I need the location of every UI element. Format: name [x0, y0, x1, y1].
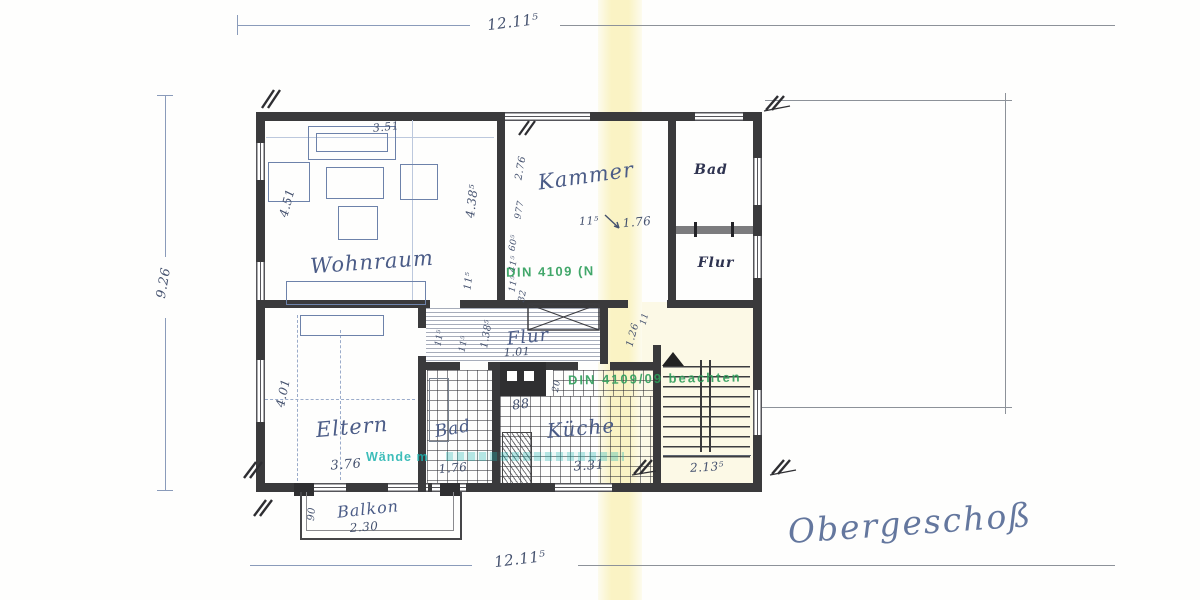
exterior-wall-left: [256, 180, 265, 262]
proj-line-right-top: [765, 100, 1005, 101]
room-label-bad-top: Bad: [694, 162, 728, 178]
exterior-wall-left: [256, 112, 265, 143]
wardrobe-eltern: [300, 315, 384, 336]
dim-chain-60: 60⁵: [508, 234, 521, 252]
dim-chain-276: 2.76: [513, 155, 528, 181]
chimney-flue: [507, 371, 517, 381]
exterior-wall-right: [753, 205, 762, 236]
dim-kammer-wall: 11⁵: [579, 214, 600, 228]
dim-slash-mark: [250, 496, 276, 520]
window-kueche-bottom: [555, 483, 612, 492]
dim-wall-11: 11⁵: [462, 271, 475, 290]
dim-line-left2: [165, 318, 166, 490]
wall-kueche-top: [545, 362, 578, 370]
door-arrow: [602, 212, 624, 234]
stamp-din-lower: DIN 4109/09 beachten: [568, 369, 742, 387]
exterior-wall-left: [256, 302, 265, 360]
sheet-title: Obergeschoß: [787, 495, 1034, 551]
wall-flur-badkueche: [488, 362, 500, 370]
stamp-walls-note: Wände m: [366, 450, 429, 464]
exterior-wall-bottom: [346, 483, 388, 492]
window-bad-top: [695, 112, 743, 121]
floor-plan-sheet: Wohnraum Kammer Bad Flur Flur Eltern Bad…: [0, 0, 1200, 600]
dim-tick: [998, 407, 1012, 408]
wall-bad-flur-partition: [676, 226, 753, 234]
dim-slash-mark: [630, 456, 658, 478]
dim-balkon-width: 2.30: [349, 519, 379, 535]
dim-kammer-door: 1.76: [622, 214, 652, 230]
dim-tick: [157, 95, 173, 96]
door-tick: [694, 222, 697, 237]
room-label-eltern: Eltern: [315, 412, 389, 442]
wall-wohnraum-bottom2: [460, 300, 505, 308]
dim-line-left: [165, 95, 166, 257]
wall-corridor-left: [600, 308, 608, 364]
proj-line-right-bottom: [762, 407, 1005, 408]
dim-line-top-right: [560, 25, 1115, 26]
wall-wohnraum-kammer: [497, 112, 505, 308]
room-label-flur-top: Flur: [698, 255, 735, 271]
dim-slash-mark: [516, 118, 540, 138]
dim-line-top: [237, 25, 470, 26]
exterior-wall-top: [256, 112, 505, 121]
exterior-wall-top: [590, 112, 695, 121]
dim-slash-mark: [762, 92, 792, 114]
wall-kammer-bad: [668, 112, 676, 300]
dim-slash-mark: [768, 456, 798, 478]
dim-eltern-depth: 4.01: [273, 377, 293, 408]
room-label-wohnraum: Wohnraum: [309, 246, 434, 279]
exterior-wall-bottom: [466, 483, 555, 492]
armchair-right: [400, 164, 438, 200]
coffee-table: [326, 167, 384, 199]
dim-sofa-width: 3.51: [372, 119, 400, 135]
exterior-wall-right: [753, 278, 762, 390]
window-bad-right: [753, 158, 762, 205]
exterior-wall-right: [753, 112, 762, 158]
dim-balkon-depth: 90: [306, 507, 318, 522]
window-flur-right: [753, 236, 762, 278]
dim-overall-depth-left: 9.26: [154, 266, 174, 299]
wall-bad-kueche: [492, 370, 500, 483]
stair-direction-arrow: [662, 352, 684, 366]
dim-shaft-88: 88: [511, 396, 530, 413]
dim-overall-width-bottom: 12.11⁵: [493, 547, 547, 571]
dim-wohnraum-right-depth: 4.38⁵: [463, 183, 481, 218]
window-eltern-left: [256, 360, 265, 422]
chimney-flue: [524, 371, 534, 381]
dim-tick: [998, 100, 1012, 101]
dim-slash-mark: [240, 458, 266, 482]
armchair-center: [338, 206, 378, 240]
window-wohnraum-left1: [256, 143, 265, 180]
wall-flurtop-bottom: [667, 300, 762, 308]
dim-eltern-width: 3.76: [330, 456, 362, 473]
dim-overall-width-top: 12.11⁵: [486, 10, 540, 34]
dim-corridor-11: 11: [639, 312, 652, 327]
dim-line-bottom-right: [578, 565, 1115, 566]
stair-dim-bracket: [663, 455, 751, 456]
stamp-walls-note-illegible: [446, 452, 624, 461]
sideboard: [286, 281, 426, 305]
window-wohnraum-left2: [256, 262, 265, 302]
proj-line-right-vert: [1005, 100, 1006, 407]
dim-line-bottom: [250, 565, 472, 566]
dim-corridor-126: 1.26: [625, 322, 642, 348]
dim-door-20: 20: [551, 379, 563, 393]
dim-bad-width: 1.76: [438, 460, 468, 476]
dim-tick: [237, 15, 238, 35]
stamp-din-upper: DIN 4109 (N: [506, 263, 595, 280]
dim-treppe-width: 2.13⁵: [690, 459, 725, 475]
dim-tick: [157, 490, 173, 491]
exterior-wall-bottom: [612, 483, 762, 492]
dim-chain-32: 32: [517, 289, 529, 303]
wall-eltern-flur-lower: [418, 356, 426, 492]
door-tick: [731, 222, 734, 237]
dim-slash-mark: [258, 86, 284, 110]
wall-flur-badkueche: [418, 362, 460, 370]
construction-dashed: [297, 315, 298, 481]
dim-chain-977: 977: [513, 200, 526, 220]
dim-flur-width: 1.01: [503, 345, 530, 359]
window-treppe-right: [753, 390, 762, 435]
room-label-kammer: Kammer: [537, 157, 636, 194]
construction-line: [412, 120, 413, 300]
sofa-inner: [316, 133, 388, 152]
